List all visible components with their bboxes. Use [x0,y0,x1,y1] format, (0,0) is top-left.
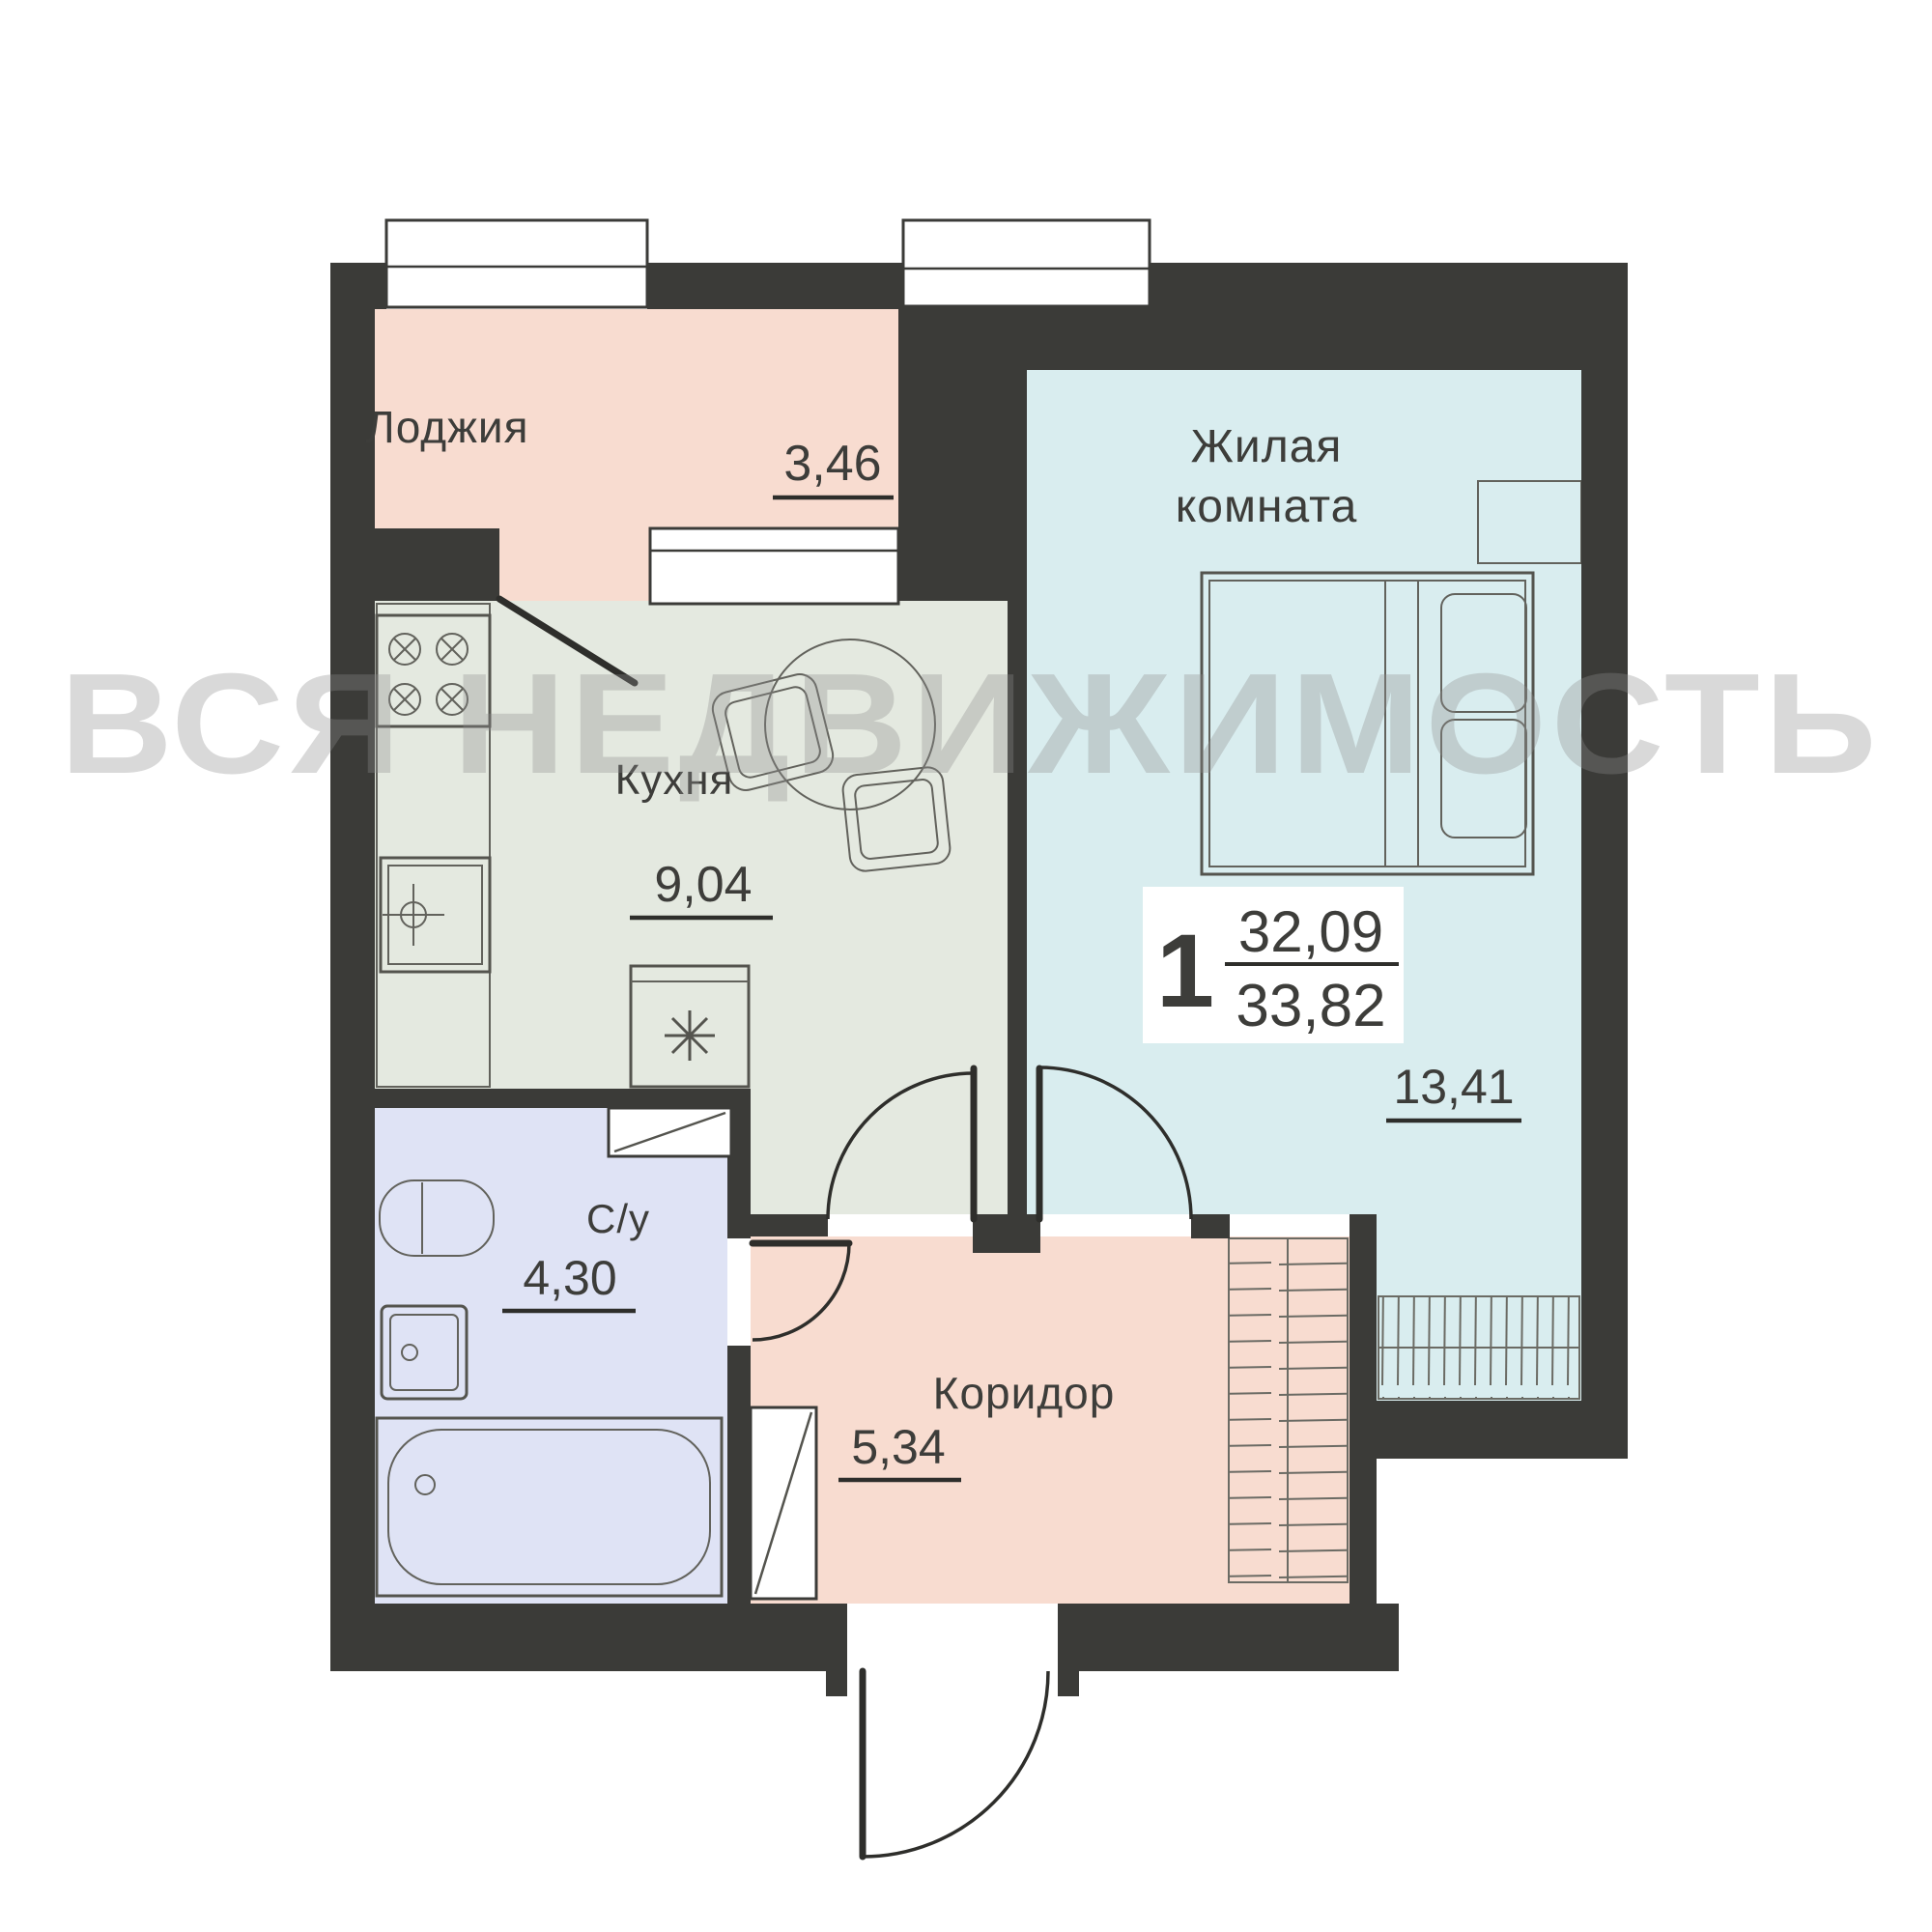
loggia-label: Лоджия [366,402,529,452]
vent-shaft-icon [609,1108,731,1156]
living-room-label-2: комната [1176,481,1358,532]
floorplan-page: Лоджия 3,46 Жилая комната 13,41 Кухня 9,… [0,0,1932,1932]
summary-box: 1 32,09 33,82 [1143,887,1404,1043]
kitchen-area: 9,04 [654,857,752,913]
bathroom-area: 4,30 [523,1251,616,1305]
living-area-total: 32,09 [1238,899,1383,964]
room-bathroom [375,1108,727,1604]
living-room-area: 13,41 [1393,1060,1514,1114]
floorplan-canvas: Лоджия 3,46 Жилая комната 13,41 Кухня 9,… [0,0,1932,1932]
total-area: 33,82 [1236,973,1385,1039]
entrance-door [863,1671,1048,1857]
corridor-area: 5,34 [851,1420,945,1474]
window-kitchen-loggia [650,528,898,604]
corridor-wardrobe-icon [1229,1238,1348,1582]
utility-shaft-icon [751,1407,816,1599]
watermark-text: ВСЯ НЕДВИЖИМОСТЬ [60,644,1881,804]
loggia-area: 3,46 [783,436,881,492]
corridor-label: Коридор [933,1368,1116,1418]
window-loggia [386,220,647,307]
window-living [903,220,1150,306]
living-room-label-1: Жилая [1191,421,1343,472]
rooms-count: 1 [1156,912,1214,1029]
living-wardrobe-icon [1378,1296,1579,1399]
bathroom-label: С/у [586,1196,650,1241]
